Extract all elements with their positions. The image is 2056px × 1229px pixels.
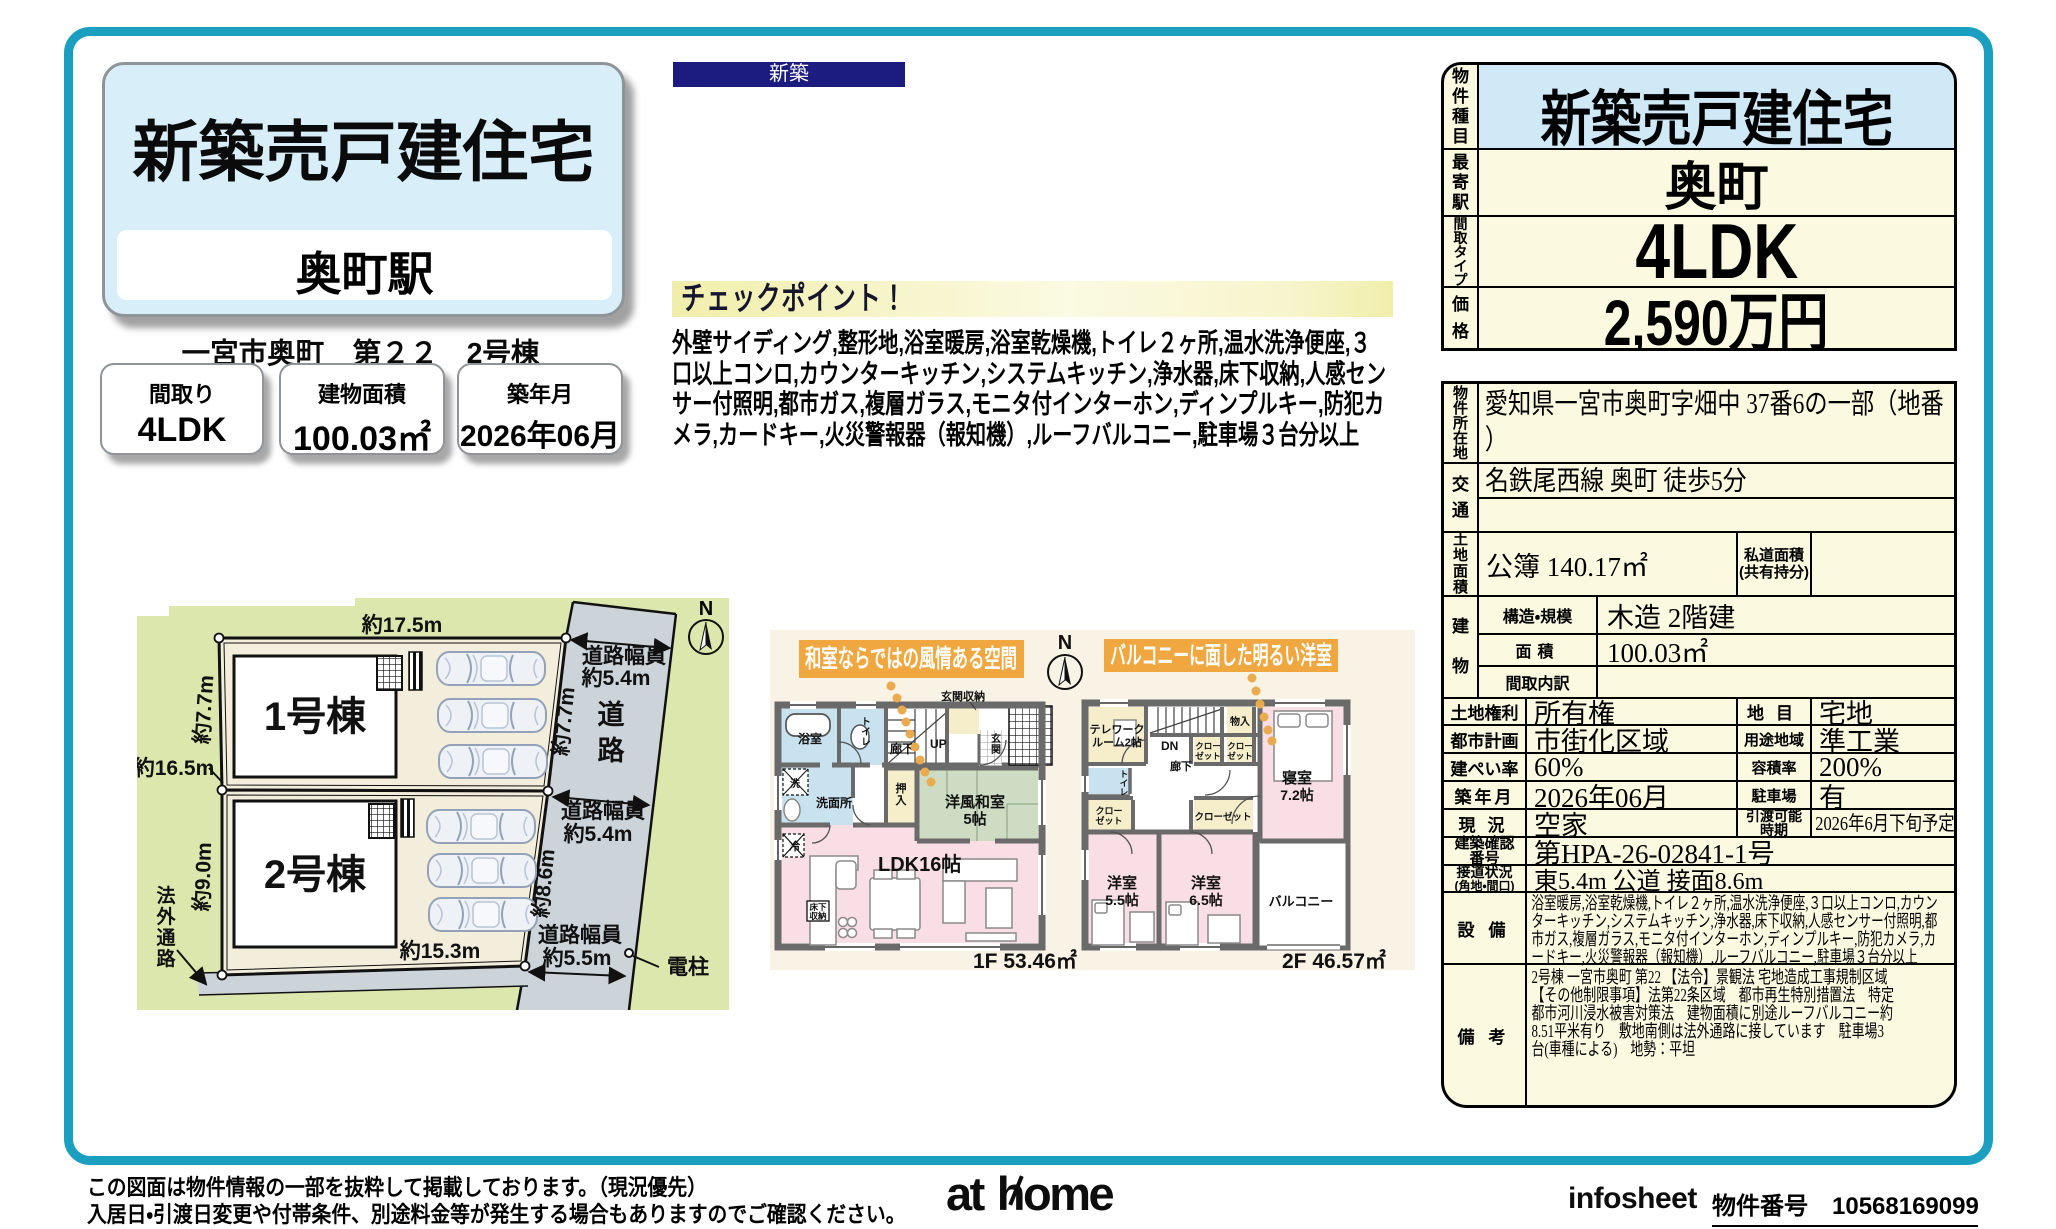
svg-text:道: 道 [598,700,625,730]
svg-text:通: 通 [156,927,176,949]
svg-text:バルコニー: バルコニー [1269,894,1334,909]
svg-text:約17.5m: 約17.5m [361,613,443,637]
svg-text:約9.0m: 約9.0m [190,842,216,913]
svg-text:洗面所: 洗面所 [816,795,852,810]
svg-text:クローゼット: クローゼット [1194,811,1251,823]
svg-text:クロー: クロー [1095,806,1122,816]
svg-text:レ: レ [861,737,871,748]
svg-text:LDK16帖: LDK16帖 [878,853,961,876]
svg-text:クロー: クロー [1227,741,1253,751]
svg-text:関: 関 [991,744,1001,756]
svg-text:約7.7m: 約7.7m [190,674,219,745]
svg-text:レ: レ [1120,787,1129,797]
svg-text:N: N [699,598,713,620]
svg-text:寝室: 寝室 [1282,769,1312,787]
svg-text:廊下: 廊下 [890,741,914,756]
svg-text:DN: DN [1161,739,1178,753]
svg-text:5帖: 5帖 [963,810,986,828]
svg-text:クロー: クロー [1195,741,1221,751]
svg-text:電柱: 電柱 [667,955,709,979]
svg-text:廊下: 廊下 [1170,759,1192,773]
svg-text:約5.5m: 約5.5m [542,946,612,970]
svg-text:テレワーク: テレワーク [1090,723,1145,736]
svg-text:冷: 冷 [789,839,801,853]
svg-text:入: 入 [895,794,907,807]
svg-text:ゼット: ゼット [1095,815,1122,826]
svg-text:道路幅員: 道路幅員 [538,923,622,947]
svg-text:洋室: 洋室 [1107,874,1137,892]
svg-text:2号棟: 2号棟 [264,853,367,897]
svg-text:路: 路 [156,947,176,970]
svg-text:ゼット: ゼット [1195,751,1221,761]
svg-text:路: 路 [598,735,626,766]
svg-text:外: 外 [155,905,176,928]
svg-text:押: 押 [896,781,907,795]
svg-text:浴室: 浴室 [798,731,822,746]
svg-text:2F 46.57㎡: 2F 46.57㎡ [1282,949,1386,970]
svg-text:ゼット: ゼット [1227,751,1253,761]
svg-text:N: N [1058,632,1072,654]
svg-text:約5.4m: 約5.4m [581,666,651,690]
svg-text:洋風和室: 洋風和室 [945,793,1005,811]
svg-text:約5.4m: 約5.4m [563,822,633,846]
svg-text:和室ならではの風情ある空間: 和室ならではの風情ある空間 [805,645,1017,673]
svg-text:洋室: 洋室 [1191,874,1221,892]
svg-text:洗: 洗 [790,777,800,790]
svg-text:5.5帖: 5.5帖 [1105,892,1138,908]
svg-text:道路幅員: 道路幅員 [561,799,645,823]
svg-text:約16.5m: 約16.5m [137,756,214,780]
svg-text:1F 53.46㎡: 1F 53.46㎡ [973,949,1077,970]
svg-text:ルーム2帖: ルーム2帖 [1092,735,1142,749]
svg-text:UP: UP [930,737,947,751]
svg-text:1号棟: 1号棟 [264,695,367,739]
svg-text:法: 法 [156,884,175,907]
svg-text:6.5帖: 6.5帖 [1189,892,1222,908]
svg-text:玄関収納: 玄関収納 [941,689,985,703]
svg-text:7.2帖: 7.2帖 [1280,787,1313,803]
svg-text:物入: 物入 [1230,715,1251,728]
svg-text:玄: 玄 [991,732,1001,745]
svg-text:道路幅員: 道路幅員 [582,644,666,668]
svg-text:収納: 収納 [809,911,827,921]
svg-text:約15.3m: 約15.3m [399,939,481,963]
svg-text:バルコニーに面した明るい洋室: バルコニーに面した明るい洋室 [1110,641,1332,670]
